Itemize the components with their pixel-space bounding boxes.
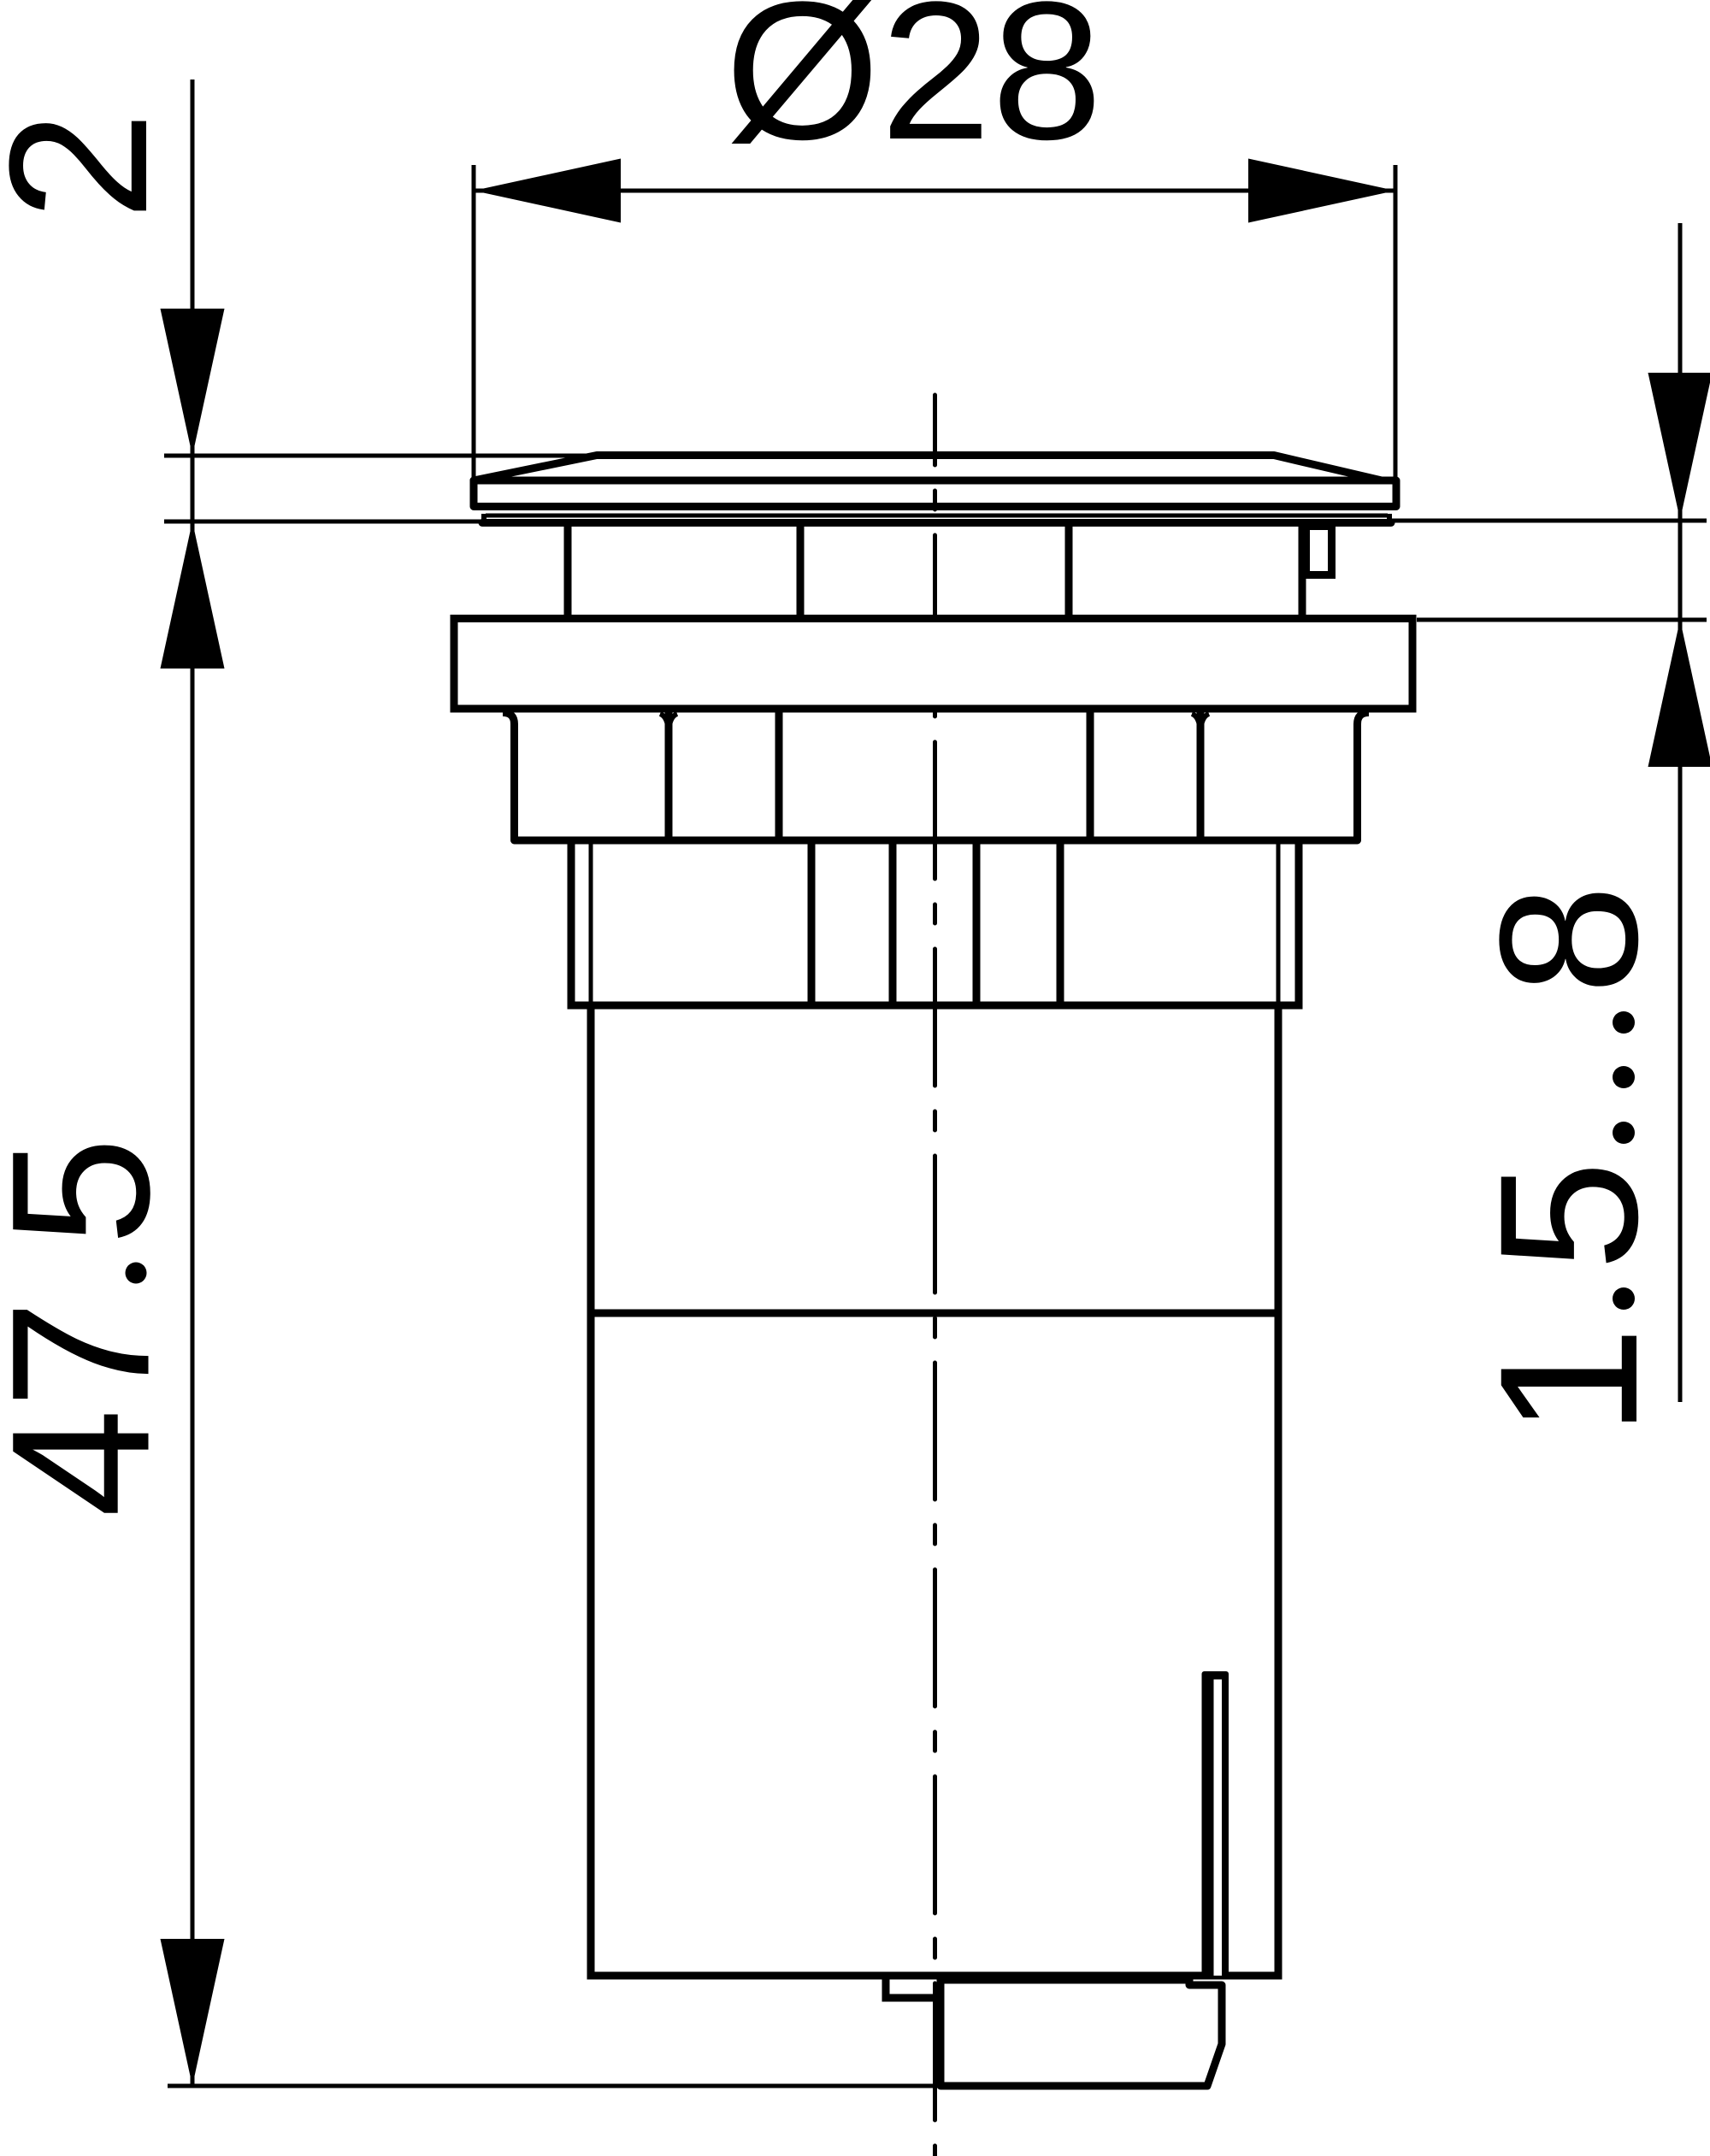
svg-text:2: 2 (0, 111, 188, 221)
svg-text:Ø28: Ø28 (725, 0, 1103, 180)
svg-text:47 5: 47 5 (0, 1137, 191, 1517)
svg-text:1 5 8: 1 5 8 (1459, 885, 1678, 1437)
